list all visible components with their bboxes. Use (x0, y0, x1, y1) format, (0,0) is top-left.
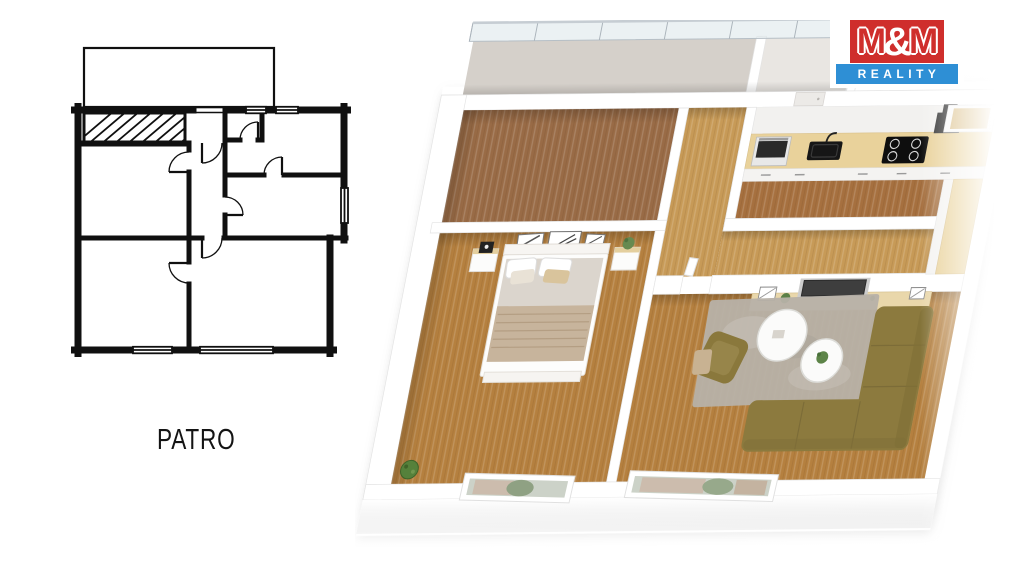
mm-reality-logo: M&M REALITY (830, 14, 964, 88)
right-fade (920, 20, 1024, 560)
floor-label: PATRO (157, 424, 235, 457)
entry-door (794, 92, 826, 106)
window-2 (624, 471, 778, 502)
floor-plan-3d (355, 20, 1024, 560)
stairs-hatch (74, 111, 218, 145)
corridor-floor (714, 229, 953, 276)
logo-mark: M&M (850, 20, 944, 63)
screenshot-root: PATRO (0, 0, 1024, 576)
logo-reality-bar: REALITY (836, 64, 958, 84)
glass-railing (469, 20, 864, 41)
oven-icon (751, 137, 792, 166)
top-left-room-floor (442, 108, 679, 224)
bottom-fade (355, 508, 1024, 560)
floor-plan-2d (55, 25, 365, 375)
tv-icon (801, 280, 866, 296)
window-1 (459, 473, 575, 503)
balcony-outline (84, 48, 274, 107)
